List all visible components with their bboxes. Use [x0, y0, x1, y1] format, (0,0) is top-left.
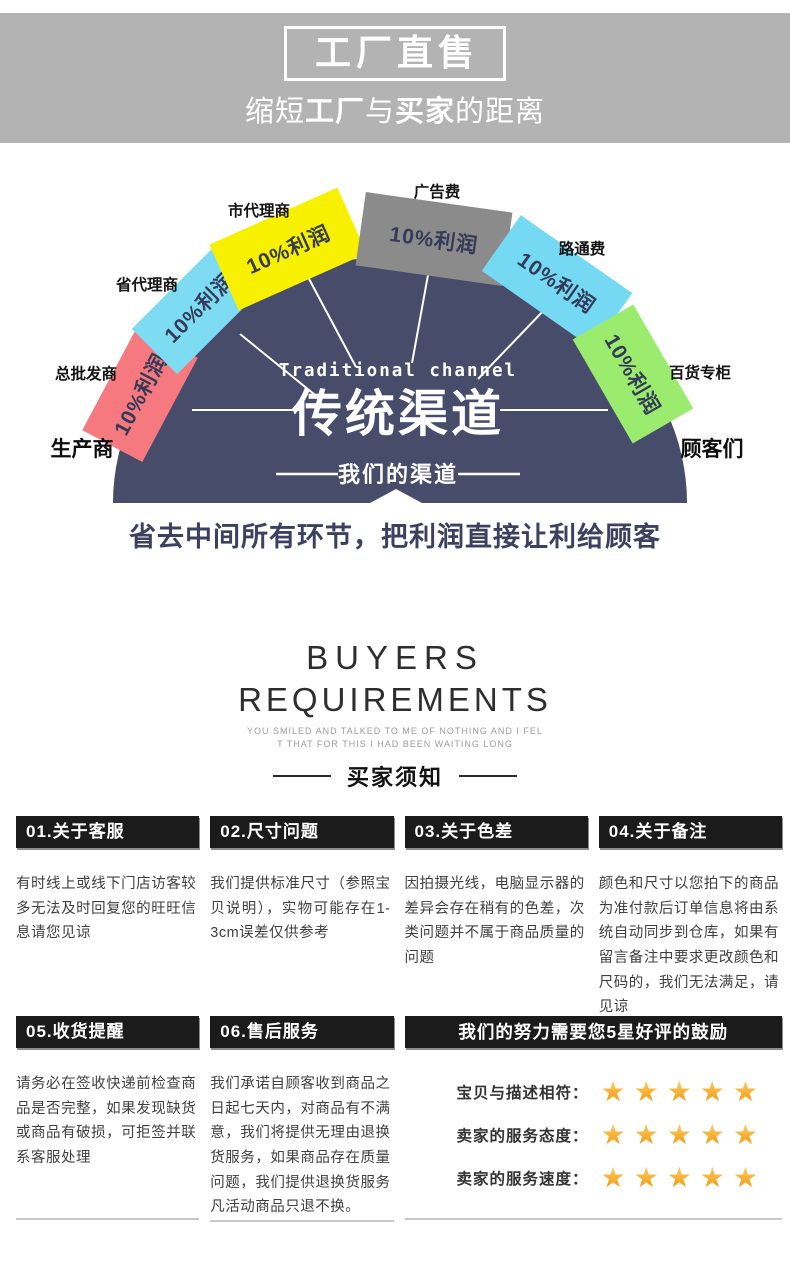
channel-fan-svg: 10%利润 10%利润 10%利润 10%利润 10%利润 10%利润	[0, 143, 790, 515]
label-city-agent: 市代理商	[228, 201, 290, 220]
notice-body: 请务必在签收快递前检查商品是否完整，如果发现缺货或商品有破损，可拒签并联系客服处…	[16, 1072, 199, 1171]
label-producer: 生产商	[51, 437, 114, 461]
star-icon: ★	[600, 1119, 633, 1150]
buyers-cn-title: 买家须知	[347, 760, 443, 792]
star-icon: ★	[700, 1119, 733, 1150]
bottom-divider	[210, 1220, 393, 1222]
star-icon: ★	[667, 1162, 700, 1193]
star-icon: ★	[700, 1076, 733, 1107]
buyers-title-line2: REQUIREMENTS	[0, 683, 790, 717]
notice-header: 02.尺寸问题	[210, 816, 393, 848]
rating-row-attitude: 卖家的服务态度： ★★★★★	[405, 1113, 783, 1156]
star-icon: ★	[700, 1162, 733, 1193]
label-customers: 顾客们	[681, 437, 744, 461]
star-icon: ★	[600, 1076, 633, 1107]
notice-header: 05.收货提醒	[16, 1016, 199, 1048]
notice-header: 06.售后服务	[210, 1016, 393, 1048]
rating-rows: 宝贝与描述相符： ★★★★★ 卖家的服务态度： ★★★★★ 卖家的服务速度： ★…	[405, 1070, 783, 1199]
star-icon: ★	[667, 1119, 700, 1150]
notice-card-size: 02.尺寸问题 我们提供标准尺寸（参照宝贝说明），实物可能存在1-3cm误差仅供…	[210, 816, 393, 1016]
traditional-channel-cn-title: 传统渠道	[291, 386, 504, 442]
rating-label: 宝贝与描述相符：	[420, 1081, 588, 1103]
notice-card-customer-service: 01.关于客服 有时线上或线下门店访客较多无法及时回复您的旺旺信息请您见谅	[16, 816, 199, 1016]
banner-title-box: 工厂直售	[284, 26, 506, 82]
bottom-divider	[16, 1218, 199, 1220]
notice-card-after-sales: 06.售后服务 我们承诺自顾客收到商品之日起七天内，对商品有不满意，我们将提供无…	[210, 1016, 393, 1220]
star-icon: ★	[733, 1119, 766, 1150]
label-toll: 路通费	[559, 239, 606, 258]
star-icon: ★	[634, 1162, 667, 1193]
diagram-slogan: 省去中间所有环节，把利润直接让利给顾客	[0, 519, 790, 555]
notice-body: 因拍摄光线，电脑显示器的差异会存在稍有的色差，次类问题并不属于商品质量的问题	[405, 872, 588, 971]
factory-direct-banner: 工厂直售 缩短工厂与买家的距离	[0, 13, 790, 143]
rating-label: 卖家的服务态度：	[420, 1124, 588, 1146]
our-channel-title: 我们的渠道	[338, 462, 458, 487]
notice-body: 有时线上或线下门店访客较多无法及时回复您的旺旺信息请您见谅	[16, 872, 199, 946]
notice-card-remarks: 04.关于备注 颜色和尺寸以您拍下的商品为准付款后订单信息将由系统自动同步到仓库…	[599, 816, 782, 1016]
notice-header: 04.关于备注	[599, 816, 782, 848]
notice-card-delivery: 05.收货提醒 请务必在签收快递前检查商品是否完整，如果发现缺货或商品有破损，可…	[16, 1016, 199, 1220]
rating-row-description: 宝贝与描述相符： ★★★★★	[405, 1070, 783, 1113]
bottom-whitespace	[0, 1220, 790, 1272]
subtitle-part-bold: 工厂	[305, 96, 365, 128]
five-star-rating: ★★★★★	[600, 1164, 766, 1192]
subtitle-part: 的距离	[455, 96, 545, 128]
subtitle-part: 缩短	[245, 96, 305, 128]
star-icon: ★	[600, 1162, 633, 1193]
buyers-note: YOU SMILED AND TALKED TO ME OF NOTHING A…	[0, 725, 790, 751]
five-star-panel: 我们的努力需要您5星好评的鼓励 宝贝与描述相符： ★★★★★ 卖家的服务态度： …	[405, 1016, 783, 1220]
five-star-rating: ★★★★★	[600, 1078, 766, 1106]
buyers-requirements-section: BUYERS REQUIREMENTS YOU SMILED AND TALKE…	[0, 641, 790, 792]
notices-grid: 01.关于客服 有时线上或线下门店访客较多无法及时回复您的旺旺信息请您见谅 02…	[0, 816, 790, 1220]
star-icon: ★	[733, 1162, 766, 1193]
bottom-divider	[405, 1218, 783, 1220]
label-wholesaler: 总批发商	[55, 364, 117, 383]
banner-subtitle: 缩短工厂与买家的距离	[245, 88, 545, 130]
buyers-title-line1: BUYERS	[0, 641, 790, 675]
notice-body: 颜色和尺寸以您拍下的商品为准付款后订单信息将由系统自动同步到仓库，如果有留言备注…	[599, 872, 782, 1020]
title-line-right	[459, 775, 517, 777]
buyers-note-line1: YOU SMILED AND TALKED TO ME OF NOTHING A…	[0, 725, 790, 738]
five-star-rating: ★★★★★	[600, 1121, 766, 1149]
channel-diagram: 10%利润 10%利润 10%利润 10%利润 10%利润 10%利润	[0, 143, 790, 555]
notice-header: 01.关于客服	[16, 816, 199, 848]
title-line-left	[273, 775, 331, 777]
buyers-note-line2: T THAT FOR THIS I HAD BEEN WAITING LONG	[0, 738, 790, 751]
star-icon: ★	[733, 1076, 766, 1107]
subtitle-part: 与	[365, 96, 395, 128]
label-advertising: 广告费	[414, 182, 461, 201]
star-icon: ★	[667, 1076, 700, 1107]
label-provincial-agent: 省代理商	[115, 275, 178, 294]
buyers-cn-title-row: 买家须知	[0, 760, 790, 792]
notice-header: 03.关于色差	[405, 816, 588, 848]
subtitle-part-bold: 买家	[395, 96, 455, 128]
notice-body: 我们提供标准尺寸（参照宝贝说明），实物可能存在1-3cm误差仅供参考	[210, 872, 393, 946]
product-detail-page: 工厂直售 缩短工厂与买家的距离 10%利润 1	[0, 0, 790, 1272]
notice-card-color-difference: 03.关于色差 因拍摄光线，电脑显示器的差异会存在稍有的色差，次类问题并不属于商…	[405, 816, 588, 1016]
notice-body: 我们承诺自顾客收到商品之日起七天内，对商品有不满意，我们将提供无理由退换货服务，…	[210, 1072, 393, 1220]
five-star-header: 我们的努力需要您5星好评的鼓励	[405, 1016, 783, 1048]
star-icon: ★	[634, 1076, 667, 1107]
rating-label: 卖家的服务速度：	[420, 1167, 588, 1189]
rating-row-speed: 卖家的服务速度： ★★★★★	[405, 1156, 783, 1199]
label-department-store: 百货专柜	[669, 363, 732, 382]
star-icon: ★	[634, 1119, 667, 1150]
banner-title: 工厂直售	[315, 32, 479, 73]
traditional-channel-en-title: Traditional channel	[279, 361, 517, 381]
